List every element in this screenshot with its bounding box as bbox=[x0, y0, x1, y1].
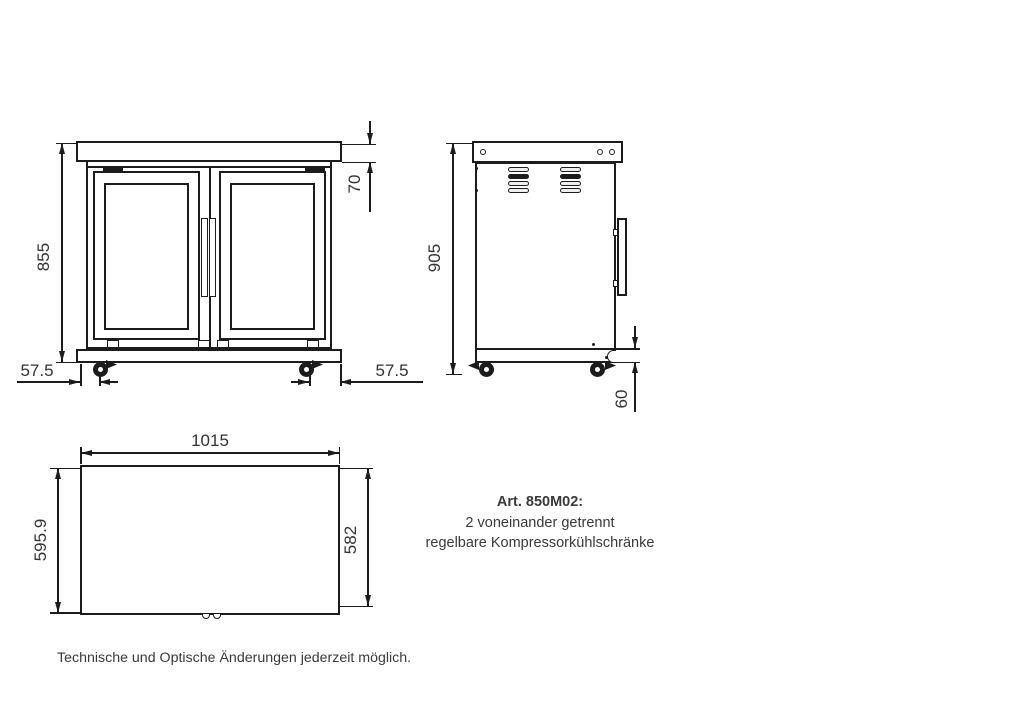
extension-line bbox=[99, 372, 101, 386]
article-annotation: Art. 850M02: 2 voneinander getrennt rege… bbox=[395, 492, 685, 554]
arrowhead-left bbox=[340, 379, 351, 385]
dimension-line-595-9 bbox=[57, 468, 59, 613]
arrowhead-down bbox=[450, 363, 456, 374]
extension-line bbox=[309, 372, 311, 386]
caster-hub bbox=[484, 367, 489, 372]
arrowhead-up bbox=[59, 143, 65, 154]
arrowhead-right bbox=[298, 379, 309, 385]
vent-slot bbox=[508, 188, 529, 193]
door-foot bbox=[217, 340, 229, 348]
arrowhead-up bbox=[365, 468, 371, 479]
arrowhead-up bbox=[632, 362, 638, 373]
dim-label-front-height: 855 bbox=[34, 243, 54, 271]
dim-label-top-depth-right: 582 bbox=[341, 526, 361, 554]
caster-hub bbox=[595, 367, 600, 372]
vent-slot bbox=[508, 181, 529, 186]
dimension-line-57-5-right bbox=[340, 381, 423, 383]
arrowhead-down bbox=[365, 595, 371, 606]
dimension-line-582 bbox=[367, 468, 369, 606]
dim-label-top-width: 1015 bbox=[191, 431, 229, 451]
screw-dot-icon bbox=[592, 343, 595, 346]
screw-dot-icon bbox=[475, 167, 478, 170]
dimension-line-905 bbox=[452, 143, 454, 374]
arrowhead-down bbox=[632, 337, 638, 348]
arrowhead-right bbox=[328, 450, 339, 456]
handle-bump bbox=[213, 614, 221, 619]
arrowhead-down bbox=[55, 602, 61, 613]
arrowhead-left bbox=[81, 450, 92, 456]
arrowhead-up bbox=[450, 143, 456, 154]
technical-drawing-page: 855 70 57.5 57.5 bbox=[0, 0, 1024, 724]
side-cabinet-body bbox=[475, 162, 616, 363]
arrowhead-down bbox=[367, 133, 373, 144]
vent-slot bbox=[560, 181, 581, 186]
extension-line bbox=[616, 348, 640, 350]
arrowhead-down bbox=[59, 351, 65, 362]
vent-slot bbox=[508, 167, 529, 172]
dim-label-front-top-offset: 70 bbox=[345, 175, 365, 194]
left-door-handle bbox=[201, 218, 208, 297]
door-foot bbox=[107, 340, 119, 348]
door-foot bbox=[307, 340, 319, 348]
arrowhead-up bbox=[367, 162, 373, 173]
dim-label-side-height: 905 bbox=[425, 244, 445, 272]
front-left-door-glass bbox=[104, 183, 189, 330]
dimension-line-855 bbox=[61, 143, 63, 362]
caster-hub bbox=[304, 367, 309, 372]
front-plinth bbox=[76, 349, 342, 363]
top-view-outline bbox=[80, 465, 340, 615]
article-description-line1: 2 voneinander getrennt bbox=[395, 513, 685, 534]
front-right-door-glass bbox=[230, 183, 315, 330]
caster-hub bbox=[98, 367, 103, 372]
extension-line bbox=[340, 364, 342, 386]
article-number: Art. 850M02: bbox=[395, 492, 685, 513]
handle-bump bbox=[202, 614, 210, 619]
arrowhead-right bbox=[69, 379, 80, 385]
side-door-handle bbox=[617, 218, 627, 296]
extension-line bbox=[80, 364, 82, 386]
arrowhead-left bbox=[99, 379, 110, 385]
screw-dot-icon bbox=[475, 189, 478, 192]
screw-icon bbox=[609, 149, 615, 155]
door-foot bbox=[198, 340, 210, 348]
dim-label-caster-offset-right: 57.5 bbox=[375, 361, 408, 381]
dim-label-top-depth-left: 595.9 bbox=[31, 519, 51, 562]
vent-slot bbox=[508, 174, 529, 179]
vent-slot bbox=[560, 188, 581, 193]
dimension-line-1015 bbox=[81, 452, 339, 454]
article-description-line2: regelbare Kompressorkühlschränke bbox=[395, 533, 685, 554]
right-door-handle bbox=[209, 218, 216, 297]
dim-label-caster-offset-left: 57.5 bbox=[20, 361, 53, 381]
base-notch bbox=[607, 350, 616, 363]
footer-note: Technische und Optische Änderungen jeder… bbox=[57, 650, 411, 666]
vent-slot bbox=[560, 167, 581, 172]
screw-dot-icon bbox=[605, 356, 608, 359]
screw-icon bbox=[597, 149, 603, 155]
side-plinth-line bbox=[477, 348, 615, 350]
vent-slot bbox=[560, 174, 581, 179]
front-counter-top bbox=[76, 141, 342, 162]
caster-bracket bbox=[468, 361, 479, 370]
screw-icon bbox=[480, 149, 486, 155]
dim-label-side-base-height: 60 bbox=[612, 390, 632, 409]
arrowhead-up bbox=[55, 468, 61, 479]
